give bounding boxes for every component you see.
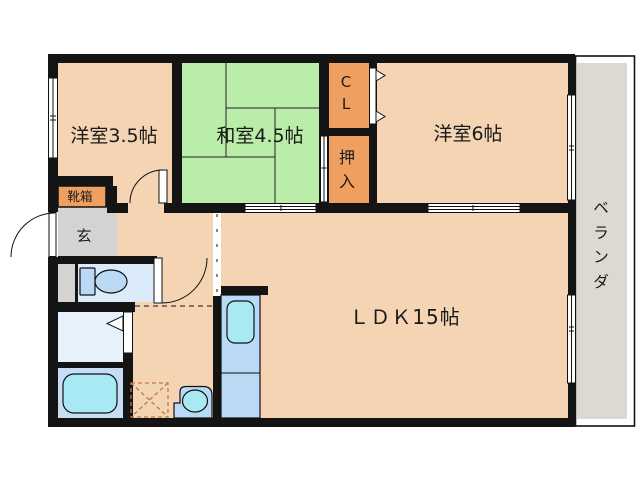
wall-bottom bbox=[48, 418, 575, 427]
sliding-door-oshiire bbox=[321, 136, 328, 202]
oshiire-area bbox=[329, 136, 369, 203]
passage-opening bbox=[213, 213, 221, 296]
sliding-door-japanese-room bbox=[245, 204, 316, 213]
washroom-area bbox=[58, 312, 123, 362]
floor-plan-page: 洋室3.5帖 和室4.5帖 洋室6帖 ＬＤＫ15帖 C L 押 入 靴箱 玄 ベ… bbox=[0, 0, 638, 480]
label-veranda: ラ bbox=[593, 224, 609, 242]
label-veranda: ン bbox=[593, 248, 609, 266]
wall-room35-japanese bbox=[172, 63, 182, 213]
wall-shoebox-right bbox=[105, 186, 117, 207]
sliding-door-west-room6 bbox=[428, 204, 520, 213]
label-oshiire: 入 bbox=[339, 172, 355, 191]
open-passage-hall-ldk bbox=[213, 213, 221, 296]
window-west-room6 bbox=[568, 95, 576, 200]
floor-plan: 洋室3.5帖 和室4.5帖 洋室6帖 ＬＤＫ15帖 C L 押 入 靴箱 玄 ベ… bbox=[0, 0, 638, 480]
wall-toilet-top bbox=[48, 256, 157, 264]
label-closet-cl: L bbox=[342, 95, 351, 113]
wall-top bbox=[48, 54, 575, 63]
window-ldk bbox=[568, 295, 576, 383]
toilet-tank bbox=[80, 268, 95, 295]
window-west bbox=[49, 78, 58, 158]
wall-closet-divider bbox=[319, 128, 377, 136]
label-veranda: ダ bbox=[593, 273, 609, 291]
label-entrance: 玄 bbox=[76, 227, 91, 245]
label-veranda: ベ bbox=[593, 199, 609, 217]
sliding-door-frame bbox=[428, 204, 520, 213]
bifold-frame bbox=[370, 68, 377, 124]
pipe-space-area bbox=[58, 264, 75, 302]
door-leaf bbox=[49, 213, 56, 257]
wall-ldk-left bbox=[213, 296, 221, 418]
label-shoe-box: 靴箱 bbox=[67, 189, 92, 204]
toilet-bowl bbox=[95, 270, 127, 293]
wash-basin-fixture bbox=[174, 387, 212, 419]
label-japanese-room-4-5: 和室4.5帖 bbox=[216, 125, 303, 147]
wall-hall-c bbox=[316, 203, 428, 213]
kitchen-unit bbox=[221, 295, 260, 418]
wall-hall-d bbox=[520, 203, 575, 213]
door-frame bbox=[124, 312, 133, 353]
toilet-fixture bbox=[80, 268, 127, 295]
wall-hall-b bbox=[164, 203, 245, 213]
label-ldk: ＬＤＫ15帖 bbox=[349, 305, 460, 329]
door-leaf bbox=[154, 258, 162, 303]
entrance-door bbox=[11, 212, 58, 257]
bathtub-fixture bbox=[63, 374, 117, 413]
wall-pipe-space-divider bbox=[75, 264, 78, 302]
kitchen-counter-edge bbox=[221, 286, 268, 295]
wall-toilet-bottom bbox=[48, 302, 135, 312]
basin-bowl bbox=[183, 390, 208, 412]
label-closet-cl: C bbox=[341, 73, 351, 91]
wall-shoebox-top bbox=[48, 176, 113, 186]
label-west-room-6: 洋室6帖 bbox=[433, 123, 502, 145]
wall-washroom-bath bbox=[48, 362, 123, 368]
label-west-room-3-5: 洋室3.5帖 bbox=[70, 125, 157, 147]
kitchen-sink bbox=[227, 301, 254, 343]
label-oshiire: 押 bbox=[339, 148, 355, 167]
door-leaf bbox=[159, 170, 167, 203]
